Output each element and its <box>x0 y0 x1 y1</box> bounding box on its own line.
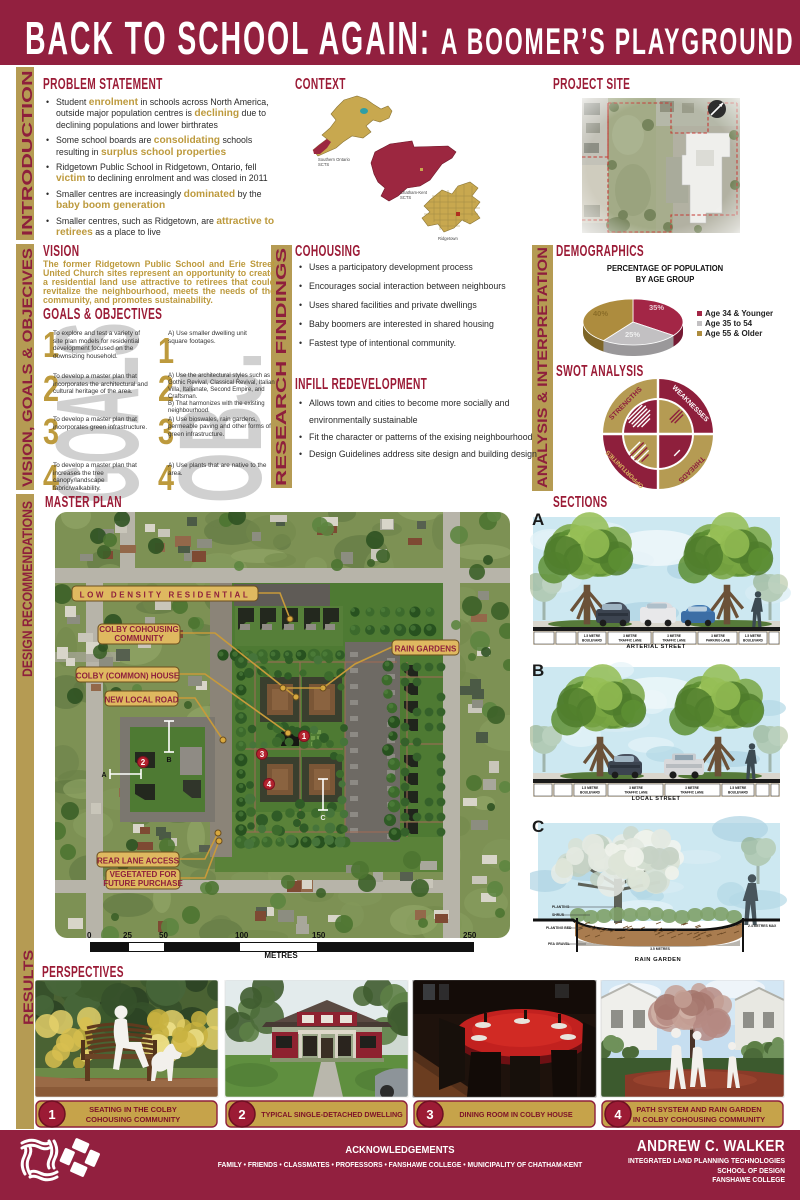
svg-text:PATH SYSTEM AND RAIN GARDEN: PATH SYSTEM AND RAIN GARDEN <box>636 1105 761 1114</box>
svg-text:A: A <box>532 510 544 529</box>
svg-text:TYPICAL SINGLE-DETACHED DWELLI: TYPICAL SINGLE-DETACHED DWELLING <box>261 1110 403 1119</box>
svg-text:BOULEVARD: BOULEVARD <box>582 639 603 643</box>
svg-text:3 METRE: 3 METRE <box>623 634 637 638</box>
svg-text:VEGETATED FOR: VEGETATED FOR <box>110 870 177 879</box>
svg-text:COLBY (COMMON) HOUSE: COLBY (COMMON) HOUSE <box>76 672 180 681</box>
svg-text:2: 2 <box>141 758 146 767</box>
svg-text:ARTERIAL STREET: ARTERIAL STREET <box>626 644 685 650</box>
svg-text:2.4 METRES MAX: 2.4 METRES MAX <box>748 924 777 928</box>
svg-text:LOW DENSITY RESIDENTIAL: LOW DENSITY RESIDENTIAL <box>80 591 251 600</box>
svg-text:RAIN GARDENS: RAIN GARDENS <box>395 645 457 654</box>
svg-text:B: B <box>532 661 544 680</box>
svg-text:RAIN GARDEN: RAIN GARDEN <box>635 957 681 963</box>
svg-text:DINING ROOM IN COLBY HOUSE: DINING ROOM IN COLBY HOUSE <box>459 1110 572 1119</box>
svg-text:1: 1 <box>302 732 307 741</box>
svg-text:3: 3 <box>260 750 265 759</box>
svg-text:FUTURE PURCHASE: FUTURE PURCHASE <box>103 879 183 888</box>
svg-text:1: 1 <box>48 1107 55 1122</box>
svg-text:40%: 40% <box>593 309 608 318</box>
svg-text:REAR LANE ACCESS: REAR LANE ACCESS <box>97 857 180 866</box>
svg-text:A: A <box>101 772 106 779</box>
svg-text:COMMUNITY: COMMUNITY <box>114 634 164 643</box>
svg-text:4: 4 <box>267 780 272 789</box>
svg-text:TRAFFIC LANE: TRAFFIC LANE <box>662 639 685 643</box>
svg-text:SCTS: SCTS <box>400 195 411 200</box>
svg-text:IN COLBY COHOUSING COMMUNITY: IN COLBY COHOUSING COMMUNITY <box>633 1115 765 1124</box>
svg-text:3.5 METRES: 3.5 METRES <box>650 947 671 951</box>
svg-text:C: C <box>320 815 325 822</box>
svg-text:LOCAL STREET: LOCAL STREET <box>632 796 681 802</box>
svg-text:BOULEVARD: BOULEVARD <box>728 791 749 795</box>
svg-text:TRAFFIC LANE: TRAFFIC LANE <box>624 791 647 795</box>
svg-text:1.5 METRE: 1.5 METRE <box>745 634 761 638</box>
svg-text:SHRUB: SHRUB <box>552 913 565 917</box>
svg-text:3: 3 <box>426 1107 433 1122</box>
svg-text:1.5 METRE: 1.5 METRE <box>582 786 598 790</box>
svg-text:PARKING LANE: PARKING LANE <box>706 639 730 643</box>
svg-text:35%: 35% <box>649 303 664 312</box>
svg-text:SCTS: SCTS <box>318 162 329 167</box>
svg-text:SEATING IN THE COLBY: SEATING IN THE COLBY <box>89 1105 177 1114</box>
svg-text:3 METRE: 3 METRE <box>629 786 643 790</box>
svg-text:BOULEVARD: BOULEVARD <box>743 639 764 643</box>
svg-text:TRAFFIC LANE: TRAFFIC LANE <box>618 639 641 643</box>
svg-text:TRAFFIC LANE: TRAFFIC LANE <box>680 791 703 795</box>
svg-text:B: B <box>166 757 171 764</box>
svg-text:25%: 25% <box>625 330 640 339</box>
svg-text:3 METRE: 3 METRE <box>667 634 681 638</box>
svg-text:3 METRE: 3 METRE <box>711 634 725 638</box>
svg-text:PLANTING: PLANTING <box>552 905 570 909</box>
svg-text:3 METRE: 3 METRE <box>685 786 699 790</box>
svg-text:1.5 METRE: 1.5 METRE <box>730 786 746 790</box>
svg-text:BOULEVARD: BOULEVARD <box>580 791 601 795</box>
svg-text:C: C <box>532 817 544 836</box>
svg-text:COLBY COHOUSING: COLBY COHOUSING <box>99 625 178 634</box>
svg-text:2: 2 <box>238 1107 245 1122</box>
svg-text:4: 4 <box>614 1107 622 1122</box>
svg-text:1.5 METRE: 1.5 METRE <box>584 634 600 638</box>
svg-text:NEW LOCAL ROAD: NEW LOCAL ROAD <box>104 696 178 705</box>
svg-text:COHOUSING COMMUNITY: COHOUSING COMMUNITY <box>86 1115 181 1124</box>
svg-text:Ridgetown: Ridgetown <box>438 236 458 241</box>
